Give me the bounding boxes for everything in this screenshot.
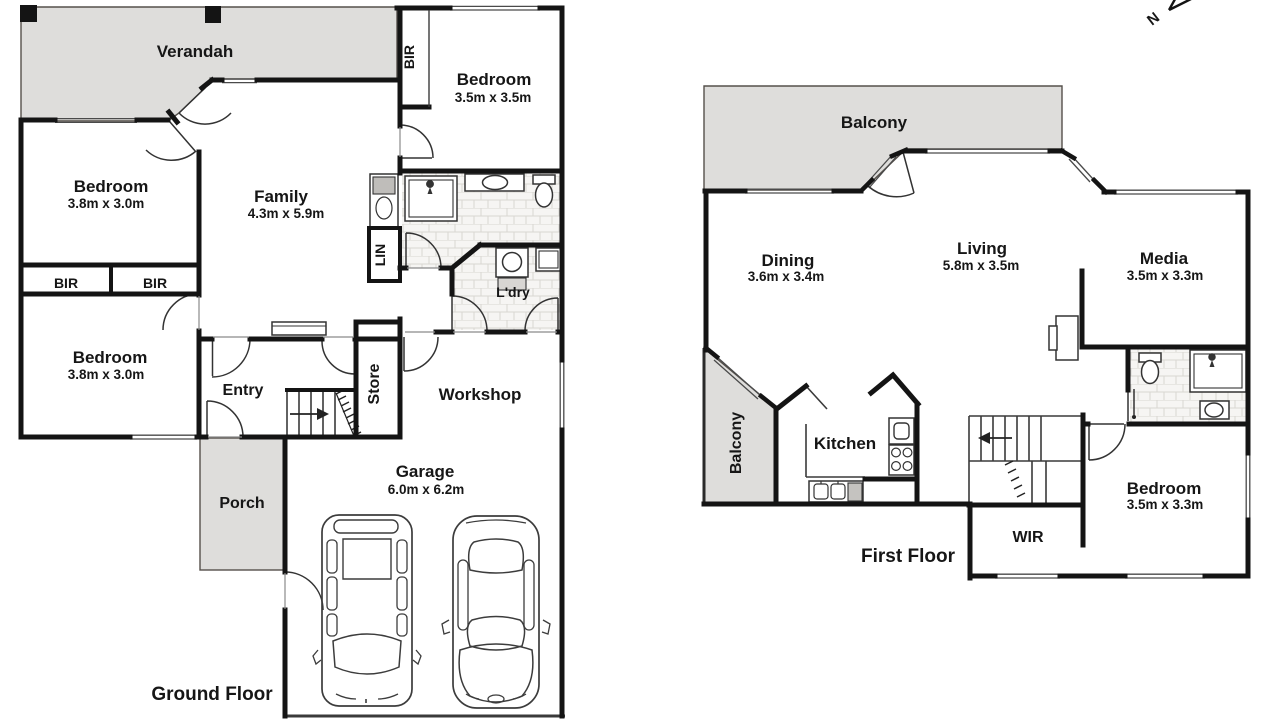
svg-text:3.5m x 3.3m: 3.5m x 3.3m: [1127, 268, 1204, 283]
svg-text:Store: Store: [366, 363, 383, 404]
svg-text:WIR: WIR: [1012, 529, 1044, 546]
svg-text:3.8m x 3.0m: 3.8m x 3.0m: [68, 367, 145, 382]
svg-text:Porch: Porch: [219, 495, 264, 512]
svg-text:Garage: Garage: [396, 462, 455, 481]
svg-text:Bedroom: Bedroom: [457, 70, 532, 89]
svg-text:Workshop: Workshop: [439, 385, 522, 404]
svg-text:Family: Family: [254, 187, 308, 206]
svg-text:Media: Media: [1140, 249, 1189, 268]
svg-text:4.3m x 5.9m: 4.3m x 5.9m: [248, 206, 325, 221]
svg-text:6.0m x 6.2m: 6.0m x 6.2m: [388, 482, 465, 497]
svg-text:3.5m x 3.3m: 3.5m x 3.3m: [1127, 497, 1204, 512]
svg-text:5.8m x 3.5m: 5.8m x 3.5m: [943, 258, 1020, 273]
svg-text:Kitchen: Kitchen: [814, 434, 876, 453]
svg-text:BIR: BIR: [143, 275, 167, 291]
svg-text:Balcony: Balcony: [841, 113, 908, 132]
svg-text:Dining: Dining: [762, 251, 815, 270]
svg-text:L'dry: L'dry: [496, 284, 530, 300]
svg-text:3.6m x 3.4m: 3.6m x 3.4m: [748, 269, 825, 284]
svg-text:Bedroom: Bedroom: [73, 348, 148, 367]
svg-text:Balcony: Balcony: [728, 412, 745, 474]
svg-text:Bedroom: Bedroom: [1127, 479, 1202, 498]
svg-text:Bedroom: Bedroom: [74, 177, 149, 196]
svg-text:3.8m x 3.0m: 3.8m x 3.0m: [68, 196, 145, 211]
svg-text:Living: Living: [957, 239, 1007, 258]
svg-text:Entry: Entry: [223, 382, 264, 399]
svg-text:LIN: LIN: [372, 244, 388, 267]
svg-text:Verandah: Verandah: [157, 42, 234, 61]
svg-text:Ground Floor: Ground Floor: [151, 684, 273, 705]
svg-text:BIR: BIR: [401, 45, 417, 69]
svg-text:3.5m x 3.5m: 3.5m x 3.5m: [455, 90, 532, 105]
svg-text:BIR: BIR: [54, 275, 78, 291]
svg-text:First Floor: First Floor: [861, 546, 956, 567]
